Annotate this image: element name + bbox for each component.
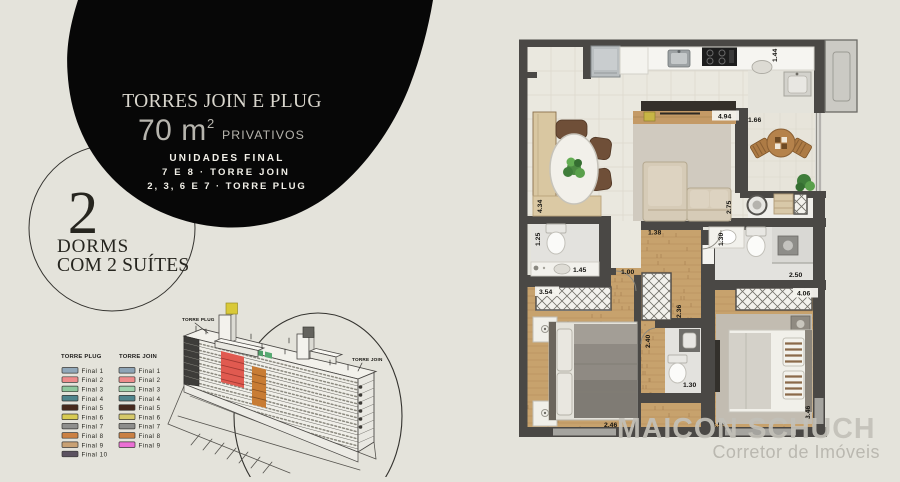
svg-text:Final 8: Final 8 bbox=[139, 433, 161, 440]
svg-text:Final 6: Final 6 bbox=[139, 414, 161, 421]
svg-text:7 E 8 · TORRE JOIN: 7 E 8 · TORRE JOIN bbox=[162, 167, 290, 178]
svg-text:Final 6: Final 6 bbox=[82, 414, 104, 421]
svg-text:1.25: 1.25 bbox=[535, 233, 542, 246]
svg-text:UNIDADES FINAL: UNIDADES FINAL bbox=[169, 153, 284, 164]
svg-text:TORRE PLUG: TORRE PLUG bbox=[61, 354, 102, 360]
svg-text:1.66: 1.66 bbox=[748, 117, 761, 124]
svg-text:Final 10: Final 10 bbox=[82, 452, 108, 459]
svg-text:Final 1: Final 1 bbox=[139, 368, 161, 375]
svg-text:70 m: 70 m bbox=[138, 114, 207, 147]
svg-text:Final 3: Final 3 bbox=[82, 387, 104, 394]
svg-text:2.75: 2.75 bbox=[726, 201, 733, 214]
svg-text:Corretor de Imóveis: Corretor de Imóveis bbox=[712, 442, 880, 462]
svg-text:TORRE JOIN: TORRE JOIN bbox=[352, 357, 383, 362]
svg-text:Final 1: Final 1 bbox=[82, 368, 104, 375]
svg-text:1.30: 1.30 bbox=[718, 233, 725, 246]
svg-text:Final 7: Final 7 bbox=[82, 424, 104, 431]
svg-text:TORRES JOIN E PLUG: TORRES JOIN E PLUG bbox=[122, 91, 322, 112]
svg-text:Final 5: Final 5 bbox=[139, 405, 161, 412]
svg-text:Final 2: Final 2 bbox=[82, 377, 104, 384]
svg-text:TORRE JOIN: TORRE JOIN bbox=[119, 354, 157, 360]
svg-text:4.34: 4.34 bbox=[537, 200, 544, 213]
svg-text:Final 5: Final 5 bbox=[82, 405, 104, 412]
svg-text:PRIVATIVOS: PRIVATIVOS bbox=[222, 128, 305, 142]
svg-text:Final 4: Final 4 bbox=[82, 396, 104, 403]
svg-text:1.44: 1.44 bbox=[772, 49, 779, 62]
svg-text:2.50: 2.50 bbox=[789, 272, 802, 279]
svg-text:3.54: 3.54 bbox=[539, 289, 552, 296]
svg-text:COM 2 SUÍTES: COM 2 SUÍTES bbox=[57, 254, 189, 276]
svg-text:4.06: 4.06 bbox=[797, 291, 810, 298]
svg-text:1.45: 1.45 bbox=[573, 267, 586, 274]
svg-text:2, 3, 6 E 7 · TORRE PLUG: 2, 3, 6 E 7 · TORRE PLUG bbox=[147, 181, 306, 192]
svg-text:Final 7: Final 7 bbox=[139, 424, 161, 431]
svg-text:2.46: 2.46 bbox=[604, 422, 617, 429]
svg-text:Final 3: Final 3 bbox=[139, 387, 161, 394]
svg-text:Final 9: Final 9 bbox=[82, 442, 104, 449]
svg-text:1.38: 1.38 bbox=[648, 230, 661, 237]
svg-text:TORRE PLUG: TORRE PLUG bbox=[182, 317, 215, 322]
svg-text:1.30: 1.30 bbox=[683, 382, 696, 389]
svg-text:1.00: 1.00 bbox=[621, 269, 634, 276]
svg-text:Final 4: Final 4 bbox=[139, 396, 161, 403]
svg-text:Final 8: Final 8 bbox=[82, 433, 104, 440]
svg-text:DORMS: DORMS bbox=[57, 236, 129, 257]
svg-text:2: 2 bbox=[207, 116, 214, 131]
svg-text:4.94: 4.94 bbox=[718, 114, 731, 121]
svg-text:Final 2: Final 2 bbox=[139, 377, 161, 384]
svg-text:2.36: 2.36 bbox=[676, 305, 683, 318]
svg-text:2.40: 2.40 bbox=[645, 335, 652, 348]
svg-text:Final 9: Final 9 bbox=[139, 442, 161, 449]
svg-text:MAICON SCHUCH: MAICON SCHUCH bbox=[617, 413, 875, 445]
